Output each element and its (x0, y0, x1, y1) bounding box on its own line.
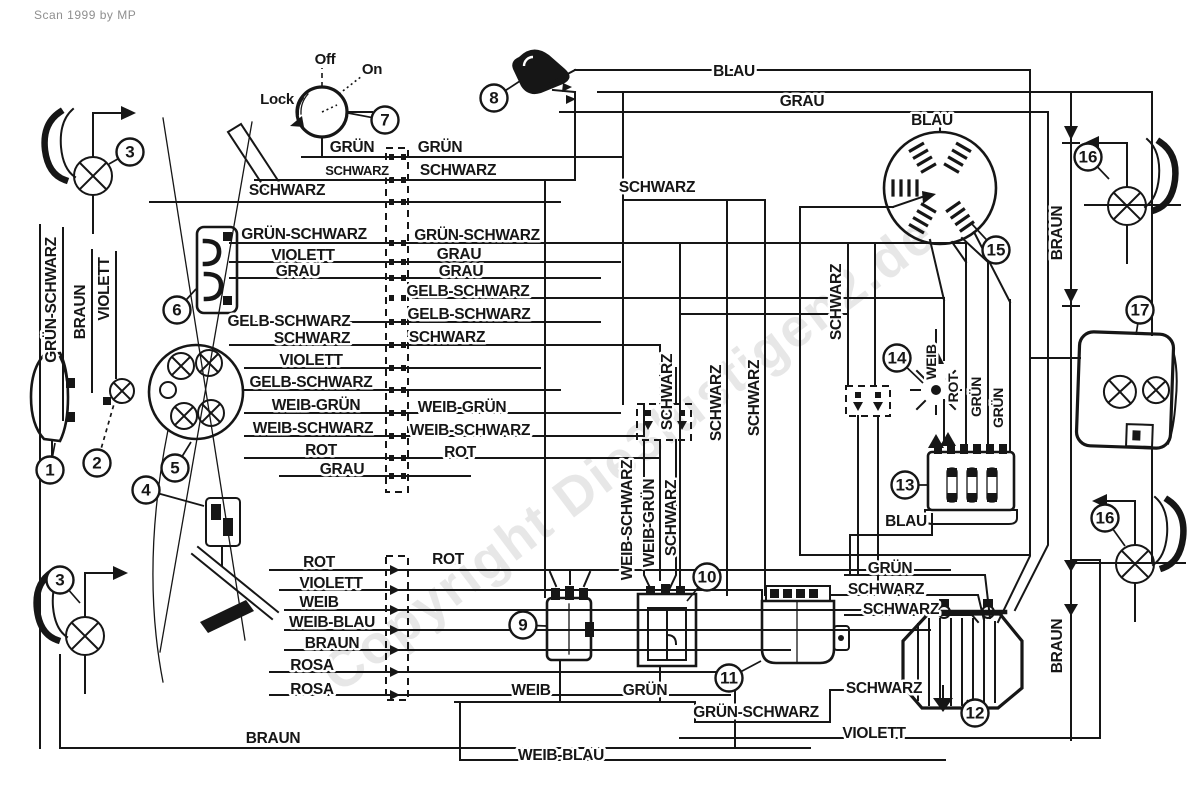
wire-color-label: SCHWARZ (846, 680, 923, 697)
wire-color-label: GELB-SCHWARZ (407, 283, 531, 300)
callout-number: 14 (888, 349, 907, 368)
headlamp-glyph (31, 353, 75, 456)
wire-color-label: GRAU (276, 263, 321, 280)
wire-color-label: BRAUN (1049, 619, 1066, 674)
wire-color-label: WEIB-SCHWARZ (253, 420, 374, 437)
callout-number: 16 (1096, 509, 1115, 528)
component-callout-16: 16 (1075, 144, 1102, 171)
wire-color-label: VIOLETT (279, 352, 343, 369)
brake-switch-glyph (512, 49, 576, 104)
wire-color-label: GRÜN (623, 682, 668, 699)
callout-number: 3 (125, 143, 134, 162)
wire-color-label: GRAU (437, 246, 482, 263)
callout-number: 9 (518, 616, 527, 635)
callout-number: 13 (896, 476, 915, 495)
callout-number: 3 (55, 571, 64, 590)
wire-color-label: GELB-SCHWARZ (250, 374, 374, 391)
wire-color-label: BLAU (885, 513, 927, 530)
component-callout-16: 16 (1092, 505, 1119, 532)
turn-signal-glyph (45, 106, 136, 233)
wire-color-label: WEIB (511, 682, 550, 699)
wire-color-label: WEIB-GRÜN (418, 399, 507, 416)
wire-color-label: WEIB-SCHWARZ (619, 459, 636, 580)
wire-color-label: ROSA (290, 681, 334, 698)
component-callout-13: 13 (892, 472, 919, 499)
wire-color-label: GRÜN-SCHWARZ (241, 226, 367, 243)
component-callout-11: 11 (716, 665, 743, 692)
component-callout-14: 14 (884, 345, 911, 372)
wire-color-label: SCHWARZ (848, 581, 925, 598)
callout-number: 17 (1131, 301, 1150, 320)
callout-number: 15 (987, 241, 1006, 260)
wire-color-label: WEIB-BLAU (289, 614, 375, 631)
callout-number: 8 (489, 89, 498, 108)
wire-color-label: ROT (303, 554, 336, 571)
wire-color-label: VIOLETT (842, 725, 906, 742)
diagram-canvas: Scan 1999 by MP Copyright Die3lustigen2.… (0, 0, 1200, 800)
wire-color-label: GRÜN (330, 139, 375, 156)
component-callout-6: 6 (164, 297, 191, 324)
wire-color-label: SCHWARZ (420, 162, 497, 179)
wire-color-label: BRAUN (72, 285, 89, 340)
wire-color-label: GRAU (320, 461, 365, 478)
wire-color-label: GELB-SCHWARZ (408, 306, 532, 323)
wire-color-label: SCHWARZ (828, 263, 845, 340)
wire-color-label: ROT (432, 551, 465, 568)
wire-color-label: GRÜN-SCHWARZ (43, 236, 60, 362)
wire-color-label: SCHWARZ (619, 179, 696, 196)
wire-color-label: VIOLETT (299, 575, 363, 592)
callout-number: 12 (966, 704, 985, 723)
callout-number: 10 (698, 568, 717, 587)
wire-color-label: SCHWARZ (249, 182, 326, 199)
callout-number: 4 (141, 481, 151, 500)
handlebar-switch-glyph (197, 227, 237, 313)
wire-color-label: ROT (945, 373, 961, 402)
wire-color-label: BLAU (713, 63, 755, 80)
component-callout-7: 7 (372, 107, 399, 134)
wire-color-label: BRAUN (246, 730, 301, 747)
component-callout-3: 3 (47, 567, 74, 594)
bulb-cluster-glyph (149, 345, 243, 439)
wire-color-label: SCHWARZ (659, 353, 676, 430)
stator-glyph (884, 132, 996, 244)
switch-position-label: On (362, 61, 382, 78)
component-callout-4: 4 (133, 477, 160, 504)
wire-color-label: WEIB (299, 594, 338, 611)
wire-color-label: GRÜN (868, 560, 913, 577)
flasher-relay-glyph (638, 584, 696, 666)
component-callout-15: 15 (983, 237, 1010, 264)
component-callout-5: 5 (162, 455, 189, 482)
wire-color-label: GRAU (780, 93, 825, 110)
callout-number: 5 (170, 459, 179, 478)
component-callout-12: 12 (962, 700, 989, 727)
component-callout-1: 1 (37, 457, 64, 484)
wire-color-label: SCHWARZ (274, 330, 351, 347)
callout-number: 6 (172, 301, 181, 320)
callout-number: 2 (92, 454, 101, 473)
component-callout-2: 2 (84, 450, 111, 477)
wire-color-label: WEIB-SCHWARZ (410, 422, 531, 439)
callout-number: 16 (1079, 148, 1098, 167)
tail-light-glyph (1076, 331, 1178, 448)
wire-color-label: GRÜN (418, 139, 463, 156)
component-callout-8: 8 (481, 85, 508, 112)
wire-color-label: SCHWARZ (325, 163, 389, 178)
callout-number: 1 (45, 461, 54, 480)
wire-color-label: GRÜN (968, 377, 984, 417)
wire-color-label: SCHWARZ (663, 479, 680, 556)
wire-color-label: VIOLETT (271, 247, 335, 264)
switch-position-label: Lock (260, 91, 295, 108)
fuse-box-glyph (925, 444, 1017, 524)
component-callout-3: 3 (117, 139, 144, 166)
harness-connector-strip-lower (386, 556, 408, 700)
wire-color-label: GRÜN-SCHWARZ (414, 227, 540, 244)
component-callout-10: 10 (694, 564, 721, 591)
wire-color-label: WEIB-GRÜN (641, 479, 658, 568)
wire-color-label: WEIB-GRÜN (272, 397, 361, 414)
component-callout-9: 9 (510, 612, 537, 639)
horn-relay-glyph (762, 586, 849, 663)
wire-color-label: SCHWARZ (708, 364, 725, 441)
wire-color-label: GRÜN-SCHWARZ (693, 704, 819, 721)
wire-color-label: ROSA (290, 657, 334, 674)
callout-number: 7 (380, 111, 389, 130)
pilot-lamp-glyph (103, 379, 134, 405)
wire-color-label: SCHWARZ (409, 329, 486, 346)
connector-block-right (846, 386, 890, 416)
switch-position-label: Off (315, 51, 337, 68)
callout-number: 11 (720, 669, 738, 688)
wire-color-label: ROT (305, 442, 338, 459)
dimmer-switch-glyph (206, 498, 240, 565)
wire-color-label: GRÜN (990, 388, 1006, 428)
wire-color-label: ROT (444, 444, 477, 461)
wiring-diagram: OffOnLockGRÜNGRÜNSCHWARZSCHWARZSCHWARZBL… (0, 0, 1200, 800)
wire-color-label: SCHWARZ (863, 601, 940, 618)
wire-color-label: GELB-SCHWARZ (228, 313, 352, 330)
wire-color-label: BRAUN (305, 635, 360, 652)
wire-color-label: SCHWARZ (746, 359, 763, 436)
wire-color-label: WEIB (923, 344, 939, 380)
ignition-coil-glyph (547, 572, 594, 660)
wire-color-label: VIOLETT (96, 256, 113, 320)
component-callout-17: 17 (1127, 297, 1154, 324)
wire-color-label: BRAUN (1049, 206, 1066, 261)
wire-color-label: WEIB-BLAU (518, 747, 604, 764)
wire-color-label: BLAU (911, 112, 953, 129)
wire-color-label: GRAU (439, 263, 484, 280)
